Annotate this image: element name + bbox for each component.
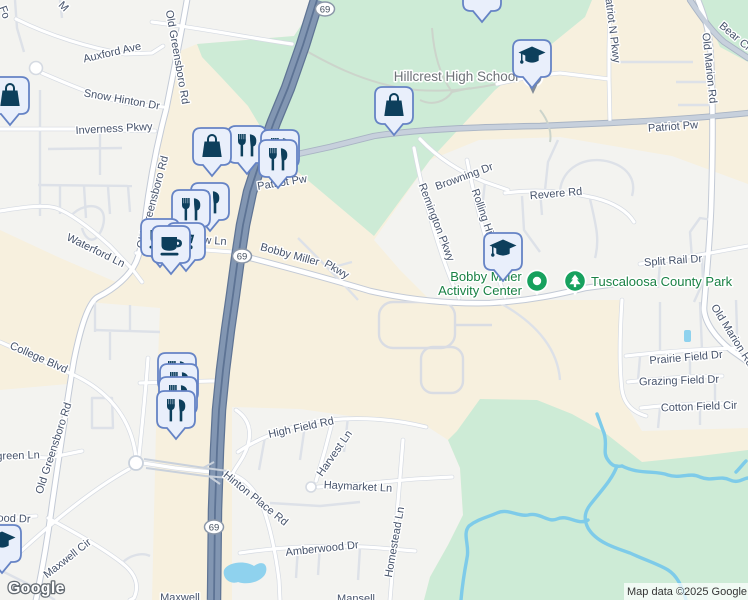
svg-text:Mansell: Mansell bbox=[337, 593, 375, 600]
svg-text:69: 69 bbox=[209, 523, 220, 534]
svg-text:ood Dr: ood Dr bbox=[0, 512, 31, 525]
svg-text:Maxwell: Maxwell bbox=[160, 592, 200, 600]
svg-text:Map data ©2025 Google: Map data ©2025 Google bbox=[627, 586, 747, 598]
svg-text:69: 69 bbox=[320, 5, 331, 16]
svg-text:Google: Google bbox=[8, 580, 65, 597]
svg-text:Hillcrest High School: Hillcrest High School bbox=[394, 69, 519, 84]
svg-text:Tuscaloosa County Park: Tuscaloosa County Park bbox=[591, 274, 733, 289]
svg-text:green Ln: green Ln bbox=[0, 449, 40, 463]
svg-text:Activity Center: Activity Center bbox=[438, 283, 522, 298]
svg-text:69: 69 bbox=[237, 252, 248, 263]
